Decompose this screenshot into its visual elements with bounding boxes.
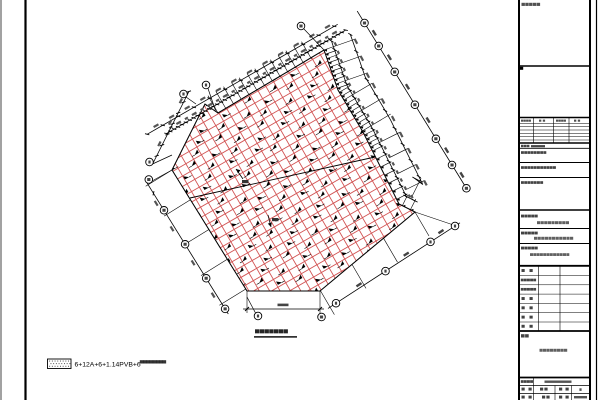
svg-text:6+12A+6+1.14PVB+6: 6+12A+6+1.14PVB+6	[75, 362, 141, 369]
